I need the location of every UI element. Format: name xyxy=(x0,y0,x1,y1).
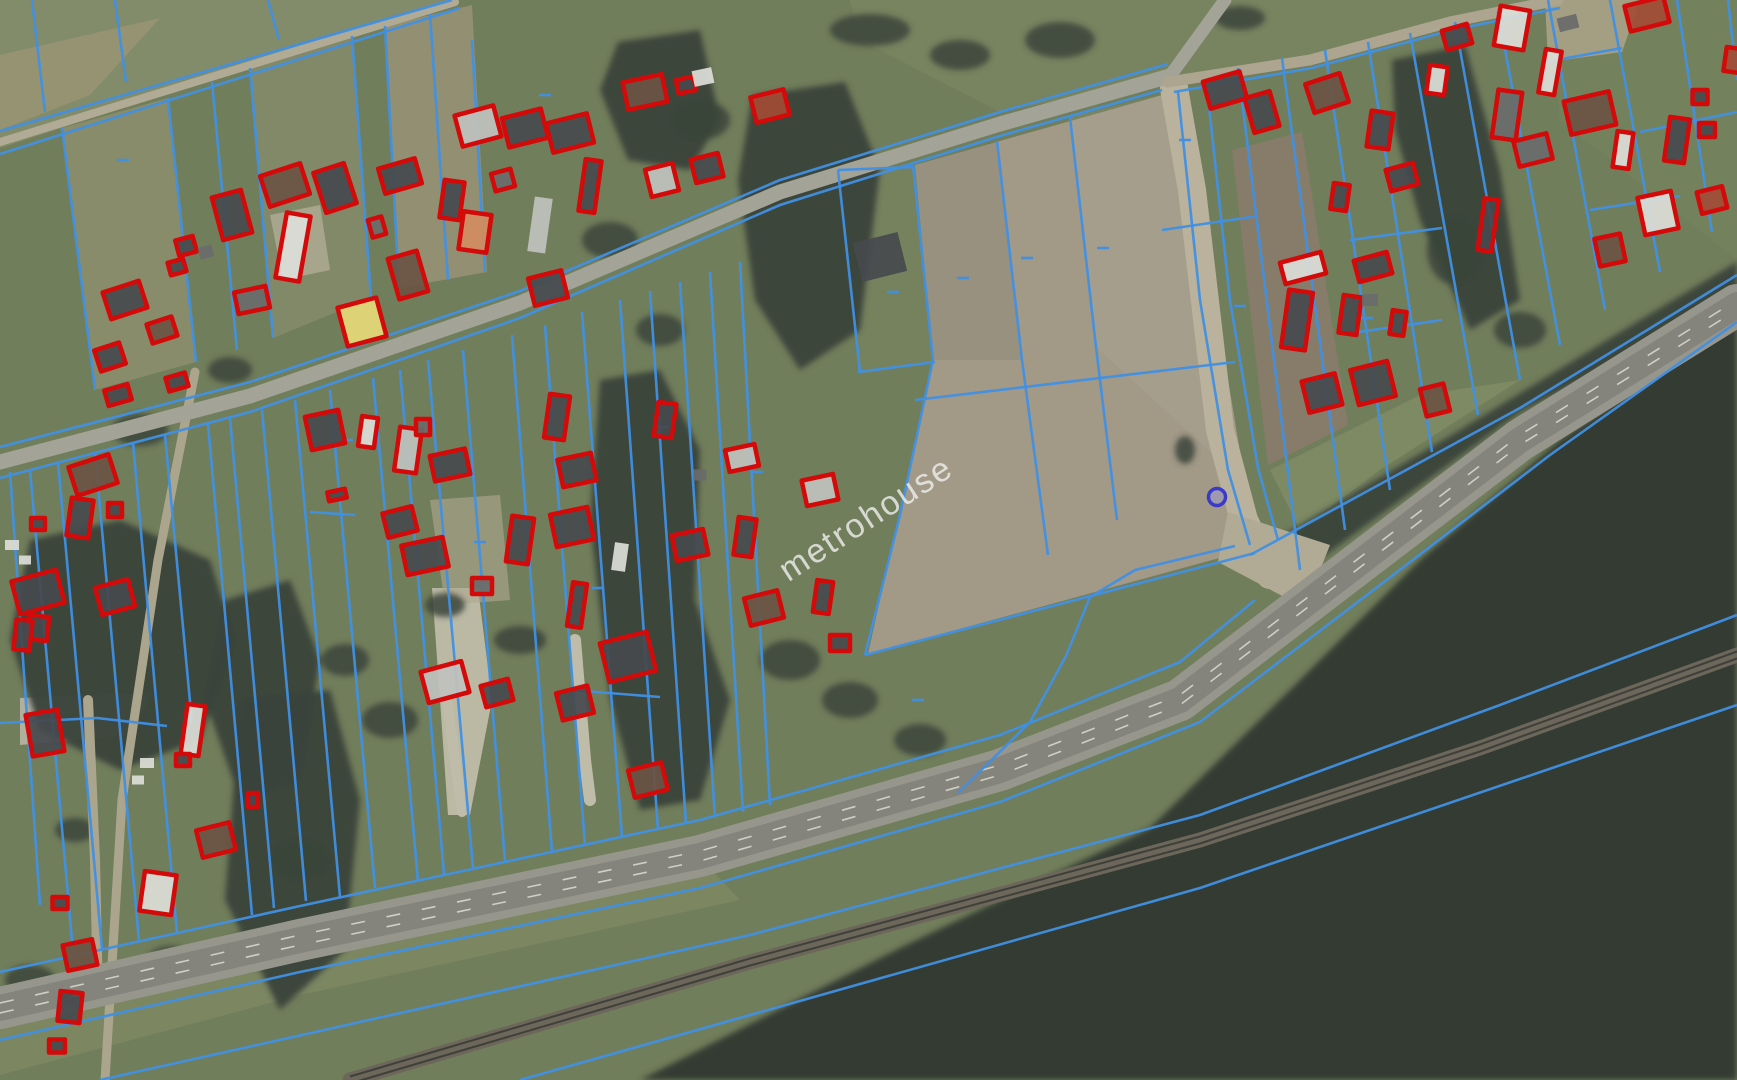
satellite-map: metrohouse xyxy=(0,0,1737,1080)
imagery-tint xyxy=(0,0,1737,1080)
map-pin-circle[interactable] xyxy=(1209,489,1226,506)
location-marker[interactable] xyxy=(1209,489,1226,506)
imagery-tint-overlay xyxy=(0,0,1737,1080)
map-viewport: metrohouse xyxy=(0,0,1737,1080)
